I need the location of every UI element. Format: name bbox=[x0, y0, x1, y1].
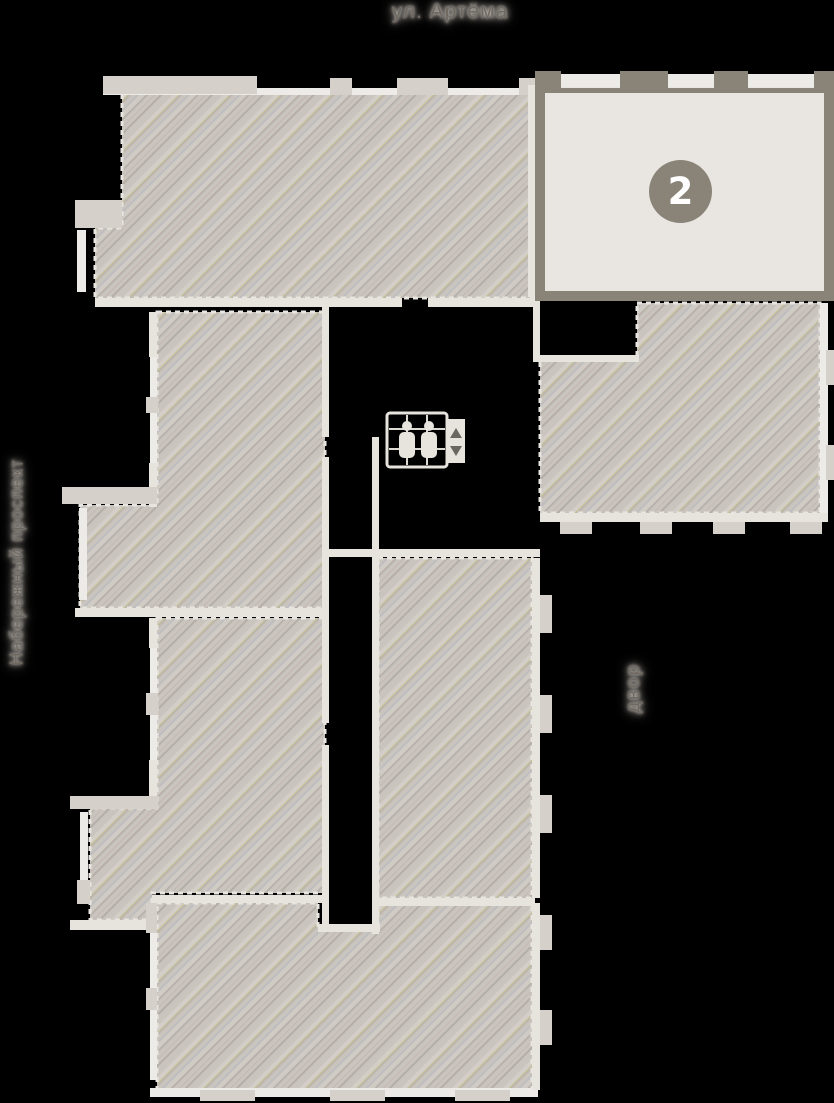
unit-hatched-left-middle bbox=[80, 312, 325, 608]
unit-hatched-right-middle bbox=[540, 303, 820, 513]
street-label-left: Набережный проспект bbox=[7, 459, 28, 666]
unit-number-badge[interactable]: 2 bbox=[649, 160, 712, 223]
floor-plan-page: ул. Артёма Набережный проспект двор 2 bbox=[0, 0, 834, 1103]
unit-2-hotspot[interactable]: 2 bbox=[535, 82, 834, 300]
unit-hatched-left-lower bbox=[90, 618, 325, 920]
street-label-top: ул. Артёма bbox=[370, 0, 530, 24]
elevator-icon bbox=[387, 413, 465, 467]
unit-hatched-top-left bbox=[95, 90, 535, 298]
courtyard-label: двор bbox=[623, 663, 645, 713]
unit-hatched-middle-strip bbox=[378, 558, 532, 898]
